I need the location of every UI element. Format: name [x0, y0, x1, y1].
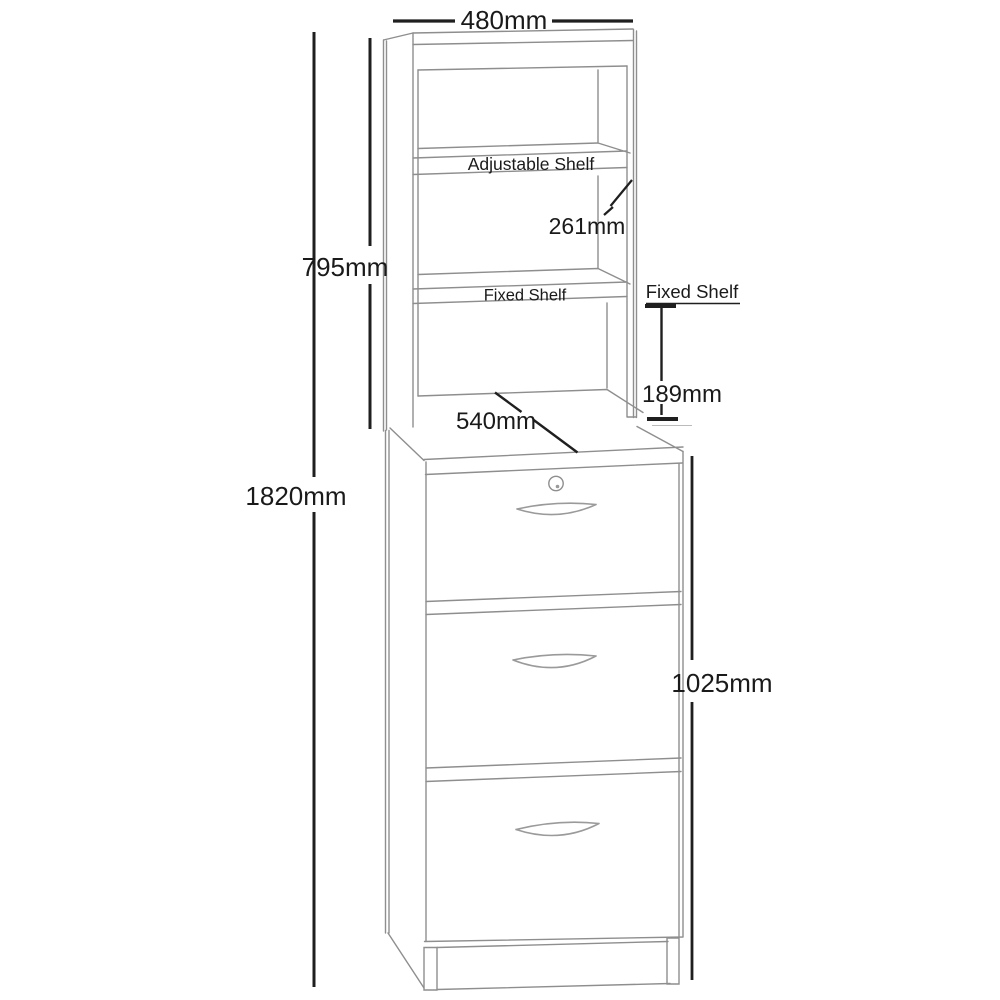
drawer-1-2-divider: [426, 592, 681, 615]
dim-cabinet-height-value: 1025mm: [671, 668, 772, 698]
dim-total-height-value: 1820mm: [245, 481, 346, 511]
dim-top-width: 480mm: [393, 5, 633, 35]
hutch-top-band: [413, 29, 633, 70]
furniture-dimension-diagram: Adjustable Shelf Fixed Shelf: [0, 0, 1000, 1000]
dim-shelf-spacing-value: 261mm: [549, 213, 626, 239]
fixed-shelf-callout-label: Fixed Shelf: [646, 281, 739, 302]
dim-shelf-spacing: 261mm: [549, 180, 632, 239]
drawer-2: [426, 654, 681, 781]
drawer-1: [426, 503, 681, 614]
dim-shelf-spacing-leader: [604, 180, 632, 215]
cabinet: [386, 427, 684, 991]
dim-cabinet-height: 1025mm: [671, 456, 772, 980]
drawer-1-handle: [517, 503, 596, 514]
drawer-2-handle: [513, 654, 596, 667]
fixed-shelf: Fixed Shelf: [413, 269, 630, 305]
lock-keyhole: [549, 476, 563, 490]
dim-total-height: 1820mm: [245, 32, 346, 987]
plinth-right-foot: [667, 938, 679, 984]
lock-keyhole-ring: [549, 476, 563, 490]
cabinet-left-side: [386, 431, 425, 989]
drawer-3: [516, 822, 599, 835]
adjustable-shelf-label: Adjustable Shelf: [468, 154, 595, 174]
hutch-left-panel: [384, 33, 414, 431]
dim-fixed-shelf-height-value: 189mm: [642, 381, 722, 408]
plinth: [424, 938, 679, 990]
lock-keyhole-slot: [556, 485, 560, 489]
cabinet-worktop: [390, 427, 683, 475]
dim-fixed-shelf-height: 189mm: [642, 306, 722, 426]
dim-worktop-depth-value: 540mm: [456, 408, 536, 435]
dim-top-width-value: 480mm: [461, 5, 548, 35]
plinth-board: [437, 942, 670, 990]
dim-hutch-height-value: 795mm: [302, 252, 389, 282]
hutch-right-panel: [627, 30, 637, 418]
fixed-shelf-callout: Fixed Shelf: [646, 281, 740, 304]
diagram-canvas: Adjustable Shelf Fixed Shelf: [0, 0, 1000, 1000]
drawer-2-3-divider: [426, 758, 681, 782]
dim-worktop-depth: 540mm: [456, 393, 578, 453]
drawer-3-handle: [516, 822, 599, 835]
plinth-left-foot: [424, 948, 437, 991]
cabinet-front-edges: [425, 452, 684, 942]
fixed-shelf-label: Fixed Shelf: [484, 287, 567, 305]
adjustable-shelf: Adjustable Shelf: [413, 143, 630, 175]
